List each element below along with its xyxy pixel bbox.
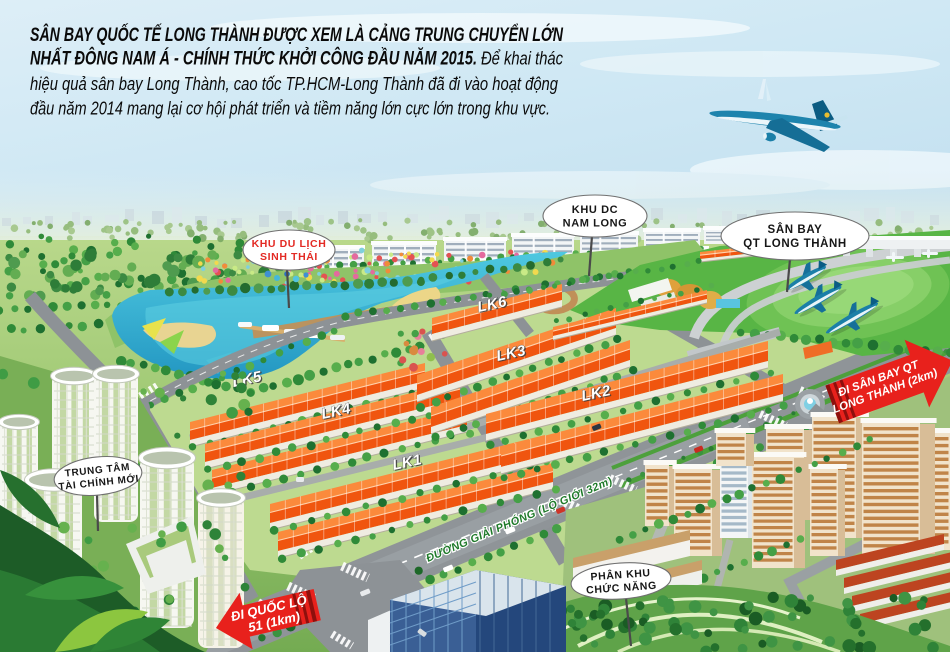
svg-text:hiệu quả sân bay Long Thành, c: hiệu quả sân bay Long Thành, cao tốc TP.… [30,73,559,94]
svg-text:Để khai thác: Để khai thác [481,48,564,69]
svg-text:SÂN BAY: SÂN BAY [768,223,823,236]
svg-text:đầu năm 2014 mang lại cơ hội p: đầu năm 2014 mang lại cơ hội phát triển … [30,98,550,119]
svg-text:NAM LONG: NAM LONG [563,218,628,230]
svg-text:SÂN BAY QUỐC TẾ LONG THÀNH ĐƯỢ: SÂN BAY QUỐC TẾ LONG THÀNH ĐƯỢC XEM LÀ C… [30,24,564,46]
svg-text:KHU DU LỊCH: KHU DU LỊCH [252,238,327,250]
svg-text:SINH THÁI: SINH THÁI [260,250,318,263]
svg-text:NHẤT ĐÔNG NAM Á - CHÍNH THỨC K: NHẤT ĐÔNG NAM Á - CHÍNH THỨC KHỞI CÔNG Đ… [30,48,477,70]
svg-text:QT LONG THÀNH: QT LONG THÀNH [743,237,847,250]
svg-text:KHU DC: KHU DC [572,204,618,216]
